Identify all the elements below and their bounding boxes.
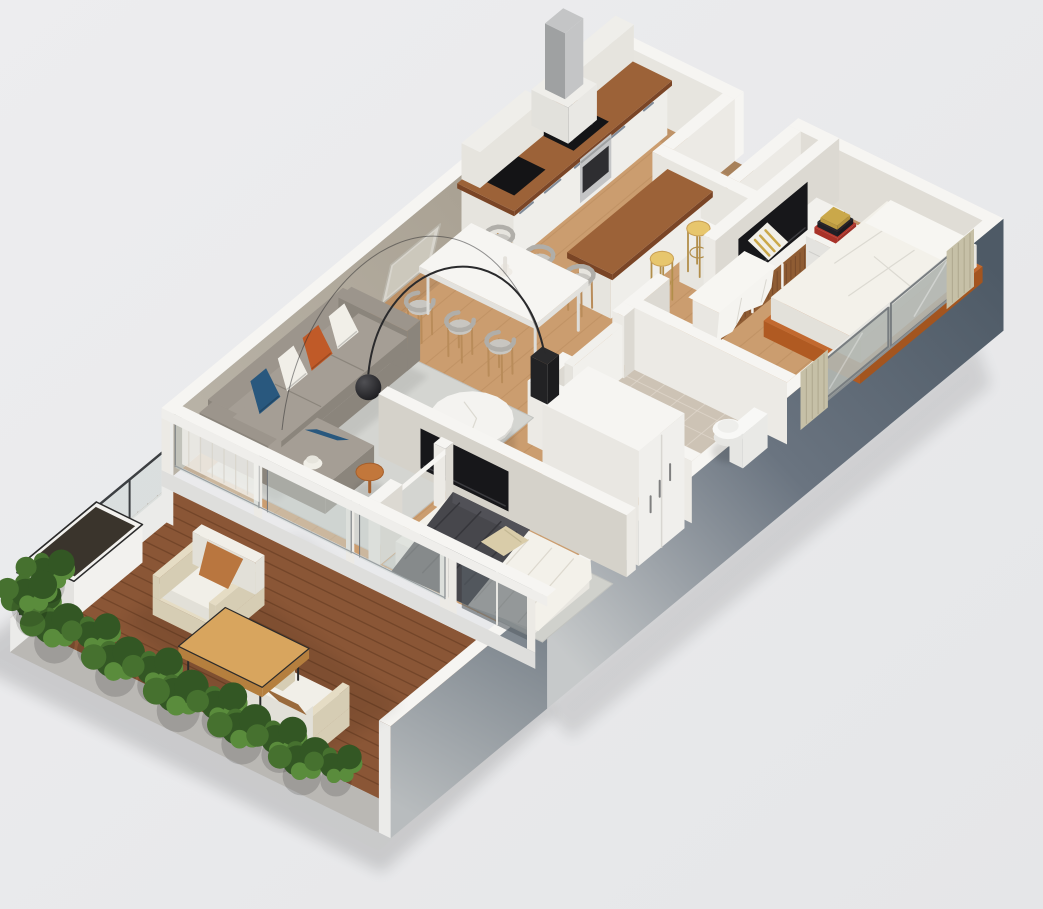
floor-plan-3d: Isometric 3D floor plan render of a two-… xyxy=(0,0,1043,909)
floor-plan-stage: Isometric 3D floor plan render of a two-… xyxy=(0,0,1043,909)
